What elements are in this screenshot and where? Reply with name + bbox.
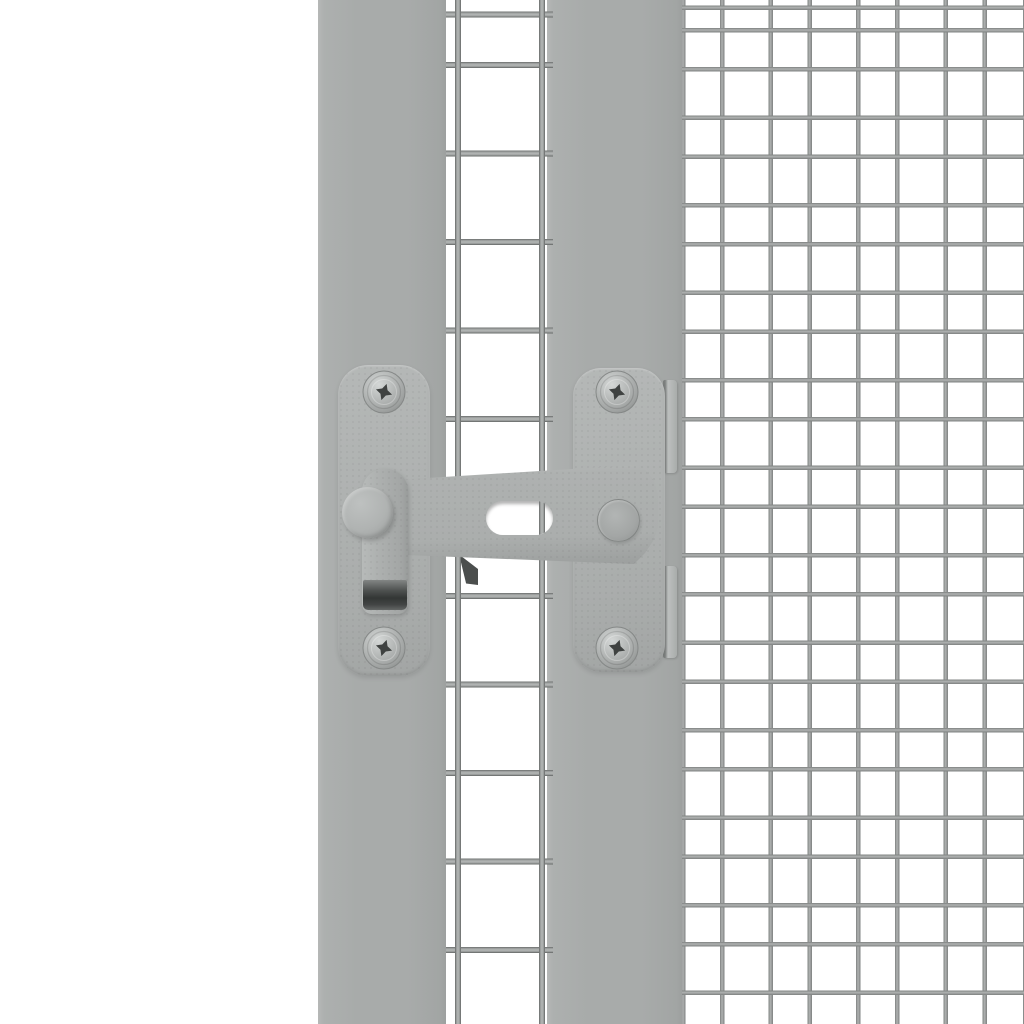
- latch-pivot-knob: [342, 487, 393, 538]
- retaining-clip-bottom: [663, 566, 677, 658]
- latch-handle-grip: [363, 580, 407, 610]
- screw-bottom-left: [362, 626, 406, 670]
- retaining-clip-top: [663, 380, 677, 473]
- screw-top-left: [362, 370, 406, 414]
- mesh-wire-through-slot: [539, 501, 545, 535]
- wire-mesh-panel: [682, 0, 1024, 1024]
- screw-top-right: [595, 370, 639, 414]
- latch-bar-slot: [486, 501, 553, 535]
- latch-guide-pin: [597, 499, 640, 542]
- product-photo: [0, 0, 1024, 1024]
- screw-bottom-right: [595, 626, 639, 670]
